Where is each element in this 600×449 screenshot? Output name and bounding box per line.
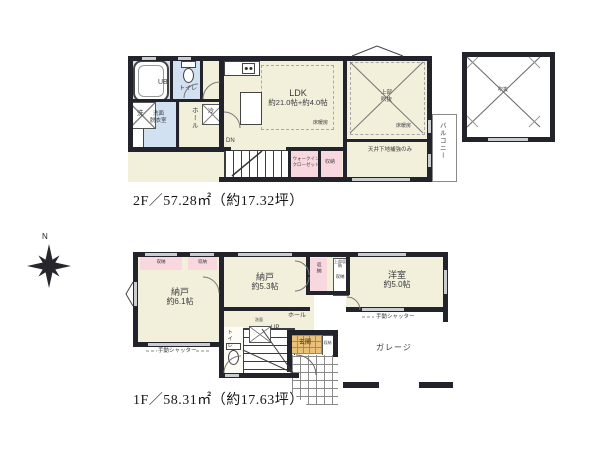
window [225,374,239,377]
window [444,270,447,294]
wic-label-2: クローゼット [291,162,321,167]
wall [219,56,224,152]
window [238,253,292,256]
wall [219,307,310,311]
fridge-label: 冷 [208,109,214,116]
wall [170,56,173,101]
closet-c-label: 収納 [333,274,347,279]
wall [200,56,203,101]
washstand-label: 洗面 [249,318,269,322]
floorplan-page: バルコニー 吹抜 UB トイレ 洗 洗面 脱衣室 ホール 冷 LDK 約21.0… [0,0,600,449]
window [428,154,431,167]
garage-label: ガレージ [376,344,412,353]
floor-heat-label-room: 床暖房 [396,124,411,130]
hall-label-1f: ホール [288,313,306,320]
kitchen-island [240,92,262,125]
wall [343,139,431,142]
closet-v-label: 収納 [315,262,321,290]
window [352,178,410,181]
garage-wall-stub [419,382,453,388]
floor2-caption: 2F／57.28㎡（約17.32坪） [133,190,304,210]
toilet-label-2f: トイレ [179,86,197,93]
toilet-bowl-2f [183,68,194,83]
compass-star-main [27,244,71,288]
closet-a-label: 収納 [140,259,182,264]
yoshitsu-size-label: 約5.0帖 [352,281,442,290]
dn-label: DN [226,138,235,145]
upper-closet-label: 上部収納 [333,260,347,269]
wall [128,56,133,152]
washroom-label-2: 脱衣室 [150,118,167,124]
nando1-label: 納戸 [137,287,223,297]
washing-machine-label: 洗 [137,110,144,117]
wall [289,330,338,335]
yoshitsu-label: 洋室 [352,270,442,280]
nando2-label: 納戸 [226,272,304,282]
wall [343,56,347,182]
wall [219,147,231,151]
wall [286,147,346,151]
ceiling-note-label: 天井下地補強のみ [350,147,430,153]
shutter-left-label: 手動シャッター [158,348,197,354]
void-square-label: 吹抜 [498,88,508,94]
toilet-tank-2f [181,61,196,68]
window [190,253,214,256]
void-label-1: 上部 [381,90,392,96]
closet-b-label: 収納 [188,259,217,264]
window [142,57,156,60]
window [145,253,177,256]
void-square [462,52,555,142]
wall [333,330,338,357]
genkan-label: 玄関 [299,340,311,347]
toilet-label-1f: トイレ [226,329,232,353]
window [148,343,210,346]
ldk-size-label: 約21.0帖+約4.0帖 [255,99,341,107]
shoe-closet-label: 収納 [322,341,333,345]
window [358,253,406,256]
wall [176,99,179,152]
floor-heat-label-ldk: 床暖房 [313,121,328,127]
balcony-label: バルコニー [438,122,445,174]
window [362,308,404,311]
ldk-label: LDK [265,88,331,98]
garage-wall-stub [343,382,379,388]
wall [287,330,292,372]
wall [443,307,448,322]
ub-label: UB [158,79,168,87]
stove-icon [242,63,255,74]
floor2-stairs [224,150,290,180]
shutter-right-label: 手動シャッター [376,314,415,320]
window [428,120,431,133]
washstand-box [249,326,271,343]
void-label-2: 吹抜 [381,97,392,103]
compass-star-diagonal [28,245,70,287]
floor1-caption: 1F／58.31㎡（約17.63坪） [133,389,304,409]
wic-label-1: ウォークイン [291,156,321,161]
wall [306,291,350,295]
nando2-size-label: 約5.3帖 [226,283,304,292]
up-label: UP [271,325,279,332]
closet-label-2f: 収納 [325,160,335,166]
hall-label-2f: ホール [190,107,197,143]
window [178,57,191,60]
wall [306,252,310,295]
window [488,138,528,141]
compass-north-label: N [42,233,48,242]
nando1-size-label: 約6.1帖 [137,298,223,307]
wall [219,252,224,378]
wall [128,56,432,61]
compass-icon [26,243,72,291]
washroom-label-1: 洗面 [153,111,164,117]
bay-window-mark [352,46,403,56]
bay-window-mark [126,282,133,306]
